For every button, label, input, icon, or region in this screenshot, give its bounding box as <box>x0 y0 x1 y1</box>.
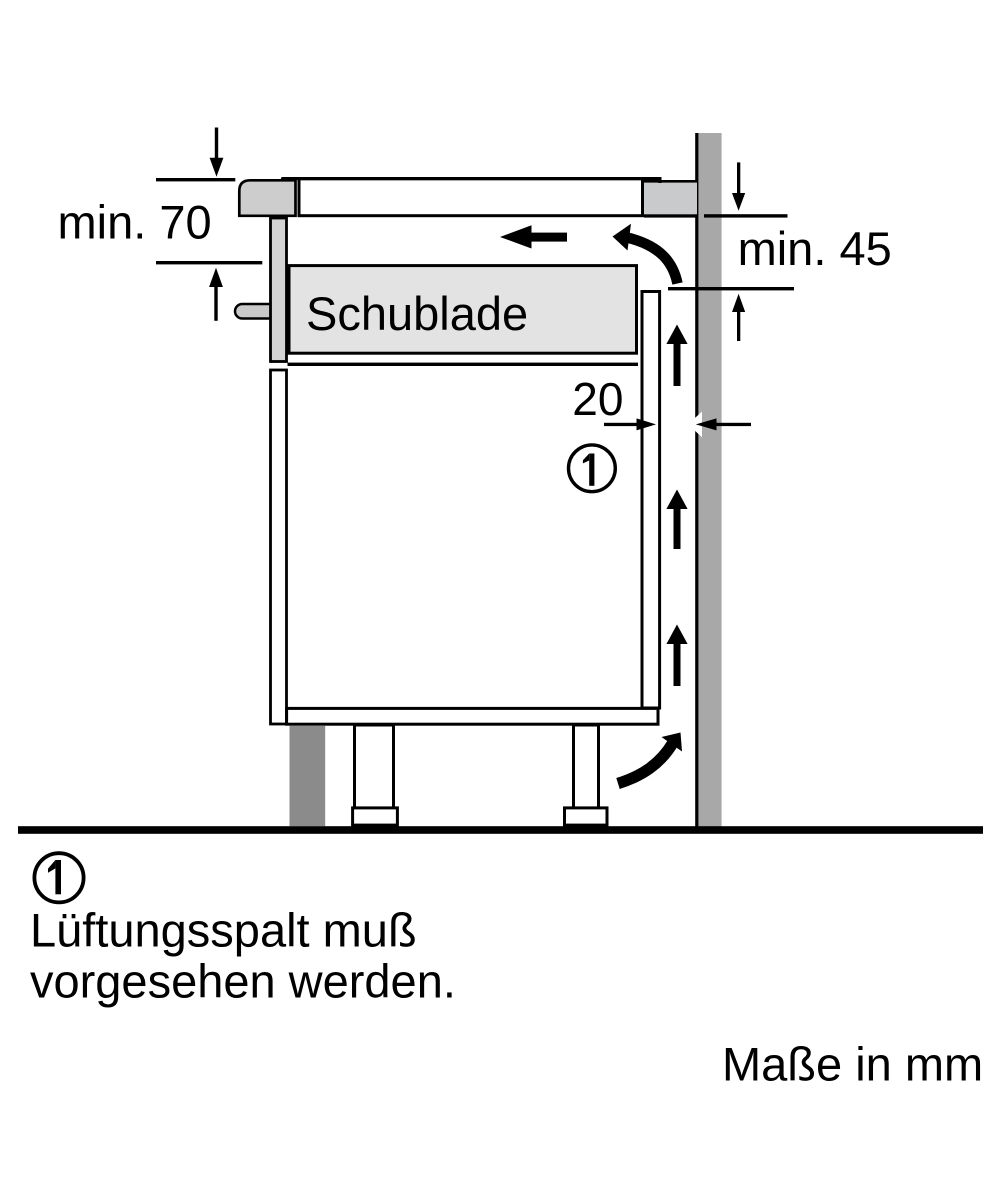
svg-text:Schublade: Schublade <box>306 287 528 340</box>
svg-text:min. 70: min. 70 <box>58 196 212 249</box>
svg-text:vorgesehen werden.: vorgesehen werden. <box>30 955 456 1008</box>
svg-text:min. 45: min. 45 <box>738 222 892 275</box>
svg-text:Lüftungsspalt muß: Lüftungsspalt muß <box>30 904 417 957</box>
svg-text:20: 20 <box>572 373 623 425</box>
svg-text:Maße in mm: Maße in mm <box>722 1038 983 1091</box>
